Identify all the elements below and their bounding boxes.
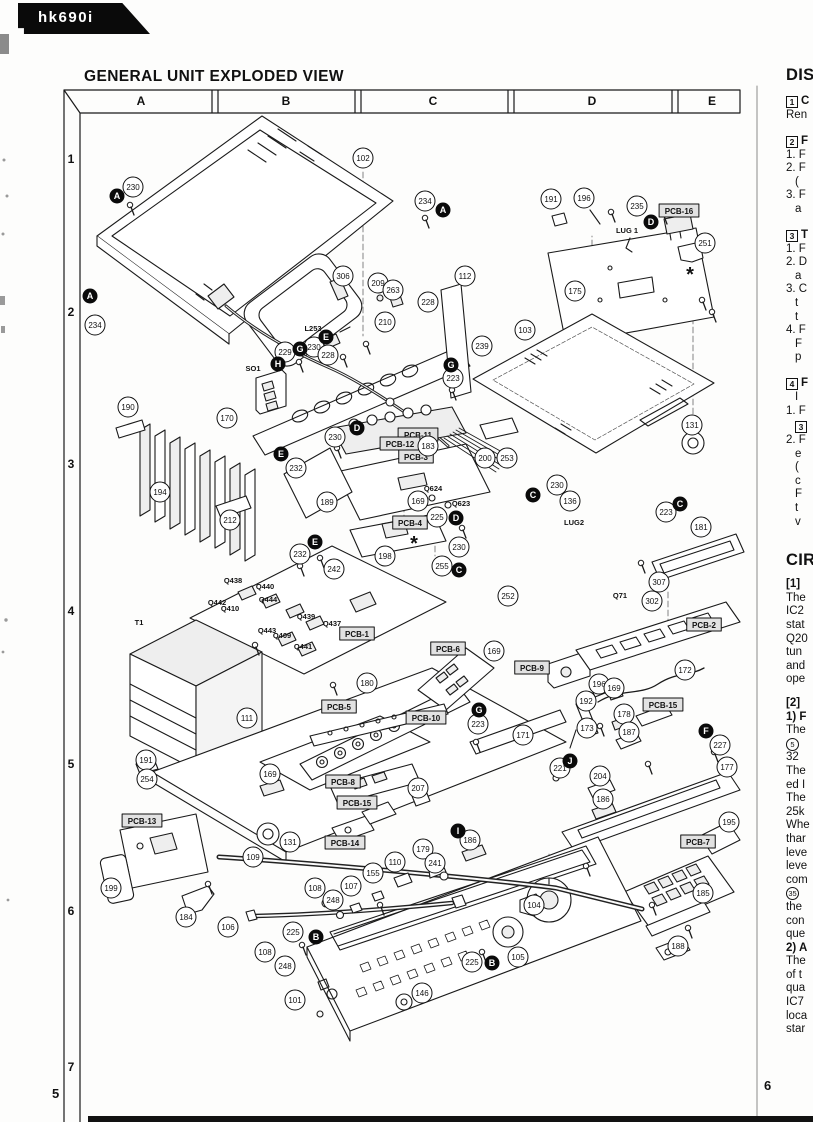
svg-text:PCB-9: PCB-9 — [520, 664, 545, 673]
svg-text:225: 225 — [465, 958, 479, 967]
svg-text:177: 177 — [720, 763, 734, 772]
svg-text:307: 307 — [652, 578, 666, 587]
svg-text:PCB-13: PCB-13 — [128, 817, 157, 826]
part-callout-248: 248 — [323, 890, 343, 910]
assembly-letter-marker-J: J — [563, 754, 578, 769]
right-column-line: The — [786, 724, 813, 738]
svg-text:101: 101 — [288, 996, 302, 1005]
svg-text:223: 223 — [446, 374, 460, 383]
boxed-step-number: 4 — [786, 378, 798, 390]
right-column-line — [786, 687, 813, 697]
part-callout-169: 169 — [408, 491, 428, 511]
svg-text:E: E — [278, 449, 284, 459]
right-column-line: Whe — [786, 819, 813, 833]
svg-text:104: 104 — [527, 901, 541, 910]
component-ref-label: Q440 — [256, 582, 274, 591]
part-callout-199: 199 — [101, 878, 121, 898]
grid-row-3: 3 — [63, 457, 79, 471]
svg-text:255: 255 — [435, 562, 449, 571]
part-callout-252: 252 — [498, 586, 518, 606]
svg-text:111: 111 — [241, 714, 254, 723]
svg-text:C: C — [456, 565, 463, 575]
right-column-line: tun — [786, 646, 813, 660]
svg-text:230: 230 — [126, 183, 140, 192]
svg-text:102: 102 — [356, 154, 370, 163]
svg-text:212: 212 — [223, 516, 237, 525]
manual-page: hk690i GENERAL UNIT EXPLODED VIEW — [0, 0, 813, 1122]
pcb-label: PCB-6 — [431, 642, 466, 655]
assembly-letter-marker-B: B — [309, 930, 324, 945]
right-column-line: 25k — [786, 806, 813, 820]
right-column-line: and — [786, 660, 813, 674]
left-foot — [257, 823, 279, 845]
assembly-letter-marker-E: E — [308, 535, 323, 550]
assembly-letter-marker-C: C — [452, 563, 467, 578]
svg-text:E: E — [312, 537, 318, 547]
boxed-step-number: 1 — [786, 96, 798, 108]
screw-icon — [645, 761, 652, 774]
part-callout-109: 109 — [243, 847, 263, 867]
right-column-line: 3. C — [786, 283, 813, 297]
grid-row-7: 7 — [63, 1060, 79, 1074]
part-callout-184: 184 — [176, 907, 196, 927]
right-column-line: que — [786, 928, 813, 942]
right-column-line — [786, 365, 813, 375]
svg-text:230: 230 — [328, 433, 342, 442]
component-ref-label: Q410 — [221, 604, 239, 613]
right-column-line: CIR — [786, 551, 813, 570]
svg-text:PCB-14: PCB-14 — [331, 839, 360, 848]
svg-text:227: 227 — [713, 741, 727, 750]
part-callout-155: 155 — [363, 863, 383, 883]
pcb-label: PCB-13 — [122, 814, 162, 827]
svg-text:PCB-5: PCB-5 — [327, 703, 352, 712]
right-column-line: 2. F — [786, 162, 813, 176]
svg-text:232: 232 — [293, 550, 307, 559]
right-column-line: IC2 — [786, 605, 813, 619]
component-ref-label: Q623 — [452, 499, 470, 508]
part-callout-187: 187 — [619, 722, 639, 742]
part-callout-191: 191 — [136, 750, 156, 770]
svg-text:PCB-16: PCB-16 — [665, 207, 694, 216]
grid-column-e: E — [702, 94, 722, 108]
assembly-letter-marker-E: E — [274, 447, 289, 462]
svg-text:107: 107 — [344, 882, 358, 891]
svg-text:169: 169 — [411, 497, 425, 506]
svg-text:189: 189 — [320, 498, 334, 507]
right-column-line — [786, 123, 813, 133]
screw-icon — [299, 942, 306, 955]
svg-text:191: 191 — [544, 195, 558, 204]
right-column-line: The — [786, 792, 813, 806]
svg-text:103: 103 — [518, 326, 532, 335]
svg-text:191: 191 — [139, 756, 153, 765]
part-callout-225: 225 — [283, 922, 303, 942]
svg-text:PCB-10: PCB-10 — [412, 714, 441, 723]
right-column-line: leve — [786, 860, 813, 874]
right-column-line: t — [786, 297, 813, 311]
assembly-letter-marker-H: H — [271, 357, 286, 372]
svg-text:190: 190 — [121, 403, 135, 412]
pcb-label: PCB-2 — [687, 618, 722, 631]
pcb-label: PCB-1 — [340, 627, 375, 640]
svg-text:F: F — [703, 726, 709, 736]
right-column-line: F — [786, 338, 813, 352]
right-column-line: c — [786, 475, 813, 489]
part-callout-230: 230 — [123, 177, 143, 197]
svg-text:186: 186 — [596, 795, 610, 804]
page-number-left: 5 — [52, 1086, 59, 1101]
right-column-line: Q20 — [786, 633, 813, 647]
svg-text:PCB-7: PCB-7 — [686, 838, 711, 847]
part-callout-189: 189 — [317, 492, 337, 512]
right-column-line: 3. F — [786, 189, 813, 203]
screw-icon — [340, 354, 347, 367]
component-ref-label: Q444 — [259, 595, 278, 604]
grid-column-a: A — [131, 94, 151, 108]
svg-text:169: 169 — [487, 647, 501, 656]
svg-text:PCB-12: PCB-12 — [386, 440, 415, 449]
right-column-line: 2F — [786, 133, 813, 149]
right-column-line: The — [786, 592, 813, 606]
part-callout-112: 112 — [455, 266, 475, 286]
svg-text:G: G — [296, 344, 303, 354]
svg-text:131: 131 — [283, 838, 297, 847]
component-ref-label: Q437 — [323, 619, 341, 628]
svg-text:223: 223 — [471, 720, 485, 729]
assembly-letter-marker-G: G — [472, 703, 487, 718]
svg-text:192: 192 — [579, 697, 593, 706]
circled-part-ref: 5 — [786, 738, 799, 751]
svg-text:185: 185 — [696, 889, 710, 898]
assembly-letter-marker-D: D — [644, 215, 659, 230]
svg-text:109: 109 — [246, 853, 260, 862]
svg-text:B: B — [313, 932, 320, 942]
pcb-label: PCB-14 — [325, 836, 365, 849]
right-column-line: F — [786, 488, 813, 502]
right-column-line: I — [786, 391, 813, 405]
svg-text:235: 235 — [630, 202, 644, 211]
right-column-line: v — [786, 516, 813, 530]
right-column-line: The — [786, 955, 813, 969]
grid-row-2: 2 — [63, 305, 79, 319]
svg-text:PCB-15: PCB-15 — [343, 799, 372, 808]
svg-text:210: 210 — [378, 318, 392, 327]
screw-icon — [330, 682, 337, 695]
scan-artifacts — [0, 34, 9, 901]
right-column-line: the — [786, 901, 813, 915]
component-ref-label: L253 — [304, 324, 321, 333]
right-column-line: thar — [786, 833, 813, 847]
grid-column-c: C — [423, 94, 443, 108]
assembly-letter-marker-D: D — [449, 511, 464, 526]
grid-column-d: D — [582, 94, 602, 108]
right-column-line: of t — [786, 969, 813, 983]
right-column-line — [786, 529, 813, 549]
screw-icon — [638, 560, 645, 573]
svg-text:PCB-2: PCB-2 — [692, 621, 717, 630]
assembly-letter-marker-D: D — [350, 421, 365, 436]
svg-text:179: 179 — [416, 845, 430, 854]
right-column-line: 2) A — [786, 942, 813, 956]
right-column-line: stat — [786, 619, 813, 633]
component-ref-label: Q441 — [294, 642, 312, 651]
part-callout-192: 192 — [576, 691, 596, 711]
svg-text:194: 194 — [153, 488, 167, 497]
part-callout-307: 307 — [649, 572, 669, 592]
right-column-line: 1) F — [786, 711, 813, 725]
pcb-label: PCB-10 — [406, 711, 446, 724]
svg-text:I: I — [457, 826, 460, 836]
svg-text:196: 196 — [577, 194, 591, 203]
svg-text:228: 228 — [321, 351, 335, 360]
svg-text:242: 242 — [327, 565, 341, 574]
svg-text:180: 180 — [360, 679, 374, 688]
pcb-label: PCB-12 — [380, 437, 420, 450]
boxed-step-number: 2 — [786, 136, 798, 148]
right-column-line: 32 — [786, 751, 813, 765]
svg-text:D: D — [354, 423, 361, 433]
svg-text:234: 234 — [418, 197, 432, 206]
right-column-line: 5 — [786, 738, 813, 752]
part-callout-108: 108 — [305, 878, 325, 898]
part-callout-146: 146 — [412, 983, 432, 1003]
part-callout-177: 177 — [717, 757, 737, 777]
svg-text:184: 184 — [179, 913, 193, 922]
grid-row-4: 4 — [63, 604, 79, 618]
right-column-line: qua — [786, 982, 813, 996]
part-callout-101: 101 — [285, 990, 305, 1010]
part-callout-186: 186 — [593, 789, 613, 809]
assembly-letter-marker-E: E — [319, 330, 334, 345]
right-column-line: 2. F — [786, 434, 813, 448]
svg-text:C: C — [530, 490, 537, 500]
assembly-letter-marker-C: C — [673, 497, 688, 512]
component-ref-label: Q439 — [297, 612, 315, 621]
pcb-label: PCB-4 — [393, 516, 428, 529]
right-column-line: ed I — [786, 779, 813, 793]
component-ref-label: LUG2 — [564, 518, 584, 527]
part-callout-251: 251 — [695, 233, 715, 253]
svg-text:230: 230 — [550, 481, 564, 490]
svg-text:175: 175 — [568, 287, 582, 296]
part-callout-111: 111 — [237, 708, 257, 728]
svg-text:223: 223 — [659, 508, 673, 517]
svg-text:169: 169 — [607, 684, 621, 693]
pcb-label: PCB-5 — [322, 700, 357, 713]
pcb-label: PCB-15 — [643, 698, 683, 711]
part-callout-254: 254 — [137, 769, 157, 789]
grid-row-1: 1 — [63, 152, 79, 166]
part-callout-242: 242 — [324, 559, 344, 579]
part-callout-191: 191 — [541, 189, 561, 209]
assembly-letter-marker-I: I — [451, 824, 466, 839]
svg-text:306: 306 — [336, 272, 350, 281]
svg-text:253: 253 — [500, 454, 514, 463]
part-callout-196: 196 — [574, 188, 594, 208]
right-column-line: loca — [786, 1010, 813, 1024]
screw-icon — [296, 359, 303, 372]
circled-part-ref: 35 — [786, 887, 799, 900]
part-callout-207: 207 — [408, 778, 428, 798]
pcb-label: PCB-9 — [515, 661, 550, 674]
part-callout-198: 198 — [375, 546, 395, 566]
svg-text:J: J — [567, 756, 572, 766]
part-callout-169: 169 — [484, 641, 504, 661]
svg-text:198: 198 — [378, 552, 392, 561]
right-column-line: The — [786, 765, 813, 779]
right-column-line: 1C — [786, 93, 813, 109]
part-callout-302: 302 — [642, 591, 662, 611]
svg-text:183: 183 — [421, 442, 435, 451]
right-column-line: 1. F — [786, 405, 813, 419]
svg-text:228: 228 — [421, 298, 435, 307]
right-column-line: con — [786, 915, 813, 929]
screw-icon — [597, 723, 604, 736]
part-callout-234: 234 — [415, 191, 435, 211]
svg-text:108: 108 — [258, 948, 272, 957]
svg-text:131: 131 — [685, 421, 699, 430]
svg-text:181: 181 — [694, 523, 708, 532]
part-callout-185: 185 — [693, 883, 713, 903]
svg-text:234: 234 — [88, 321, 102, 330]
part-callout-131: 131 — [280, 832, 300, 852]
right-column-line: t — [786, 502, 813, 516]
screw-icon — [459, 525, 466, 538]
part-callout-228: 228 — [318, 345, 338, 365]
component-ref-label: Q438 — [224, 576, 242, 585]
boxed-step-number: 3 — [786, 230, 798, 242]
svg-text:252: 252 — [501, 592, 515, 601]
svg-text:G: G — [447, 360, 454, 370]
svg-text:199: 199 — [104, 884, 118, 893]
svg-text:D: D — [648, 217, 655, 227]
right-text-column: DIS1CRen2F1. F2. F(3. Fa3T1. F2. Da3. Ct… — [786, 64, 813, 1037]
screw-icon — [363, 341, 370, 354]
part-callout-169: 169 — [260, 764, 280, 784]
pcb-label: PCB-15 — [337, 796, 377, 809]
part-callout-230: 230 — [547, 475, 567, 495]
right-column-line: a — [786, 203, 813, 217]
ac-socket — [256, 370, 286, 414]
component-ref-label: LUG 1 — [616, 226, 638, 235]
part-callout-136: 136 — [560, 491, 580, 511]
component-ref-label: Q71 — [613, 591, 627, 600]
part-callout-255: 255 — [432, 556, 452, 576]
assembly-letter-marker-A: A — [83, 289, 98, 304]
part-callout-188: 188 — [668, 936, 688, 956]
svg-text:112: 112 — [459, 272, 472, 281]
right-column-line: [2] — [786, 697, 813, 711]
svg-text:204: 204 — [593, 772, 607, 781]
pcb-label: PCB-8 — [326, 775, 361, 788]
svg-text:170: 170 — [220, 414, 234, 423]
pcb-label: PCB-7 — [681, 835, 716, 848]
right-column-line: e — [786, 448, 813, 462]
right-column-line: IC7 — [786, 996, 813, 1010]
right-column-line: star — [786, 1023, 813, 1037]
svg-text:239: 239 — [475, 342, 489, 351]
part-callout-173: 173 — [577, 718, 597, 738]
part-callout-169: 169 — [604, 678, 624, 698]
svg-text:B: B — [489, 958, 496, 968]
svg-text:A: A — [440, 205, 447, 215]
part-callout-225: 225 — [427, 507, 447, 527]
part-callout-178: 178 — [614, 704, 634, 724]
component-ref-label: Q409 — [273, 631, 291, 640]
component-ref-label: T1 — [135, 618, 144, 627]
svg-text:106: 106 — [221, 923, 235, 932]
assembly-letter-marker-G: G — [293, 342, 308, 357]
assembly-letter-marker-C: C — [526, 488, 541, 503]
part-callout-200: 200 — [475, 448, 495, 468]
right-column-line — [786, 217, 813, 227]
svg-text:PCB-4: PCB-4 — [398, 519, 423, 528]
asterisk-mark: * — [410, 533, 418, 555]
part-callout-181: 181 — [691, 517, 711, 537]
svg-text:108: 108 — [308, 884, 322, 893]
svg-text:241: 241 — [428, 859, 442, 868]
part-callout-102: 102 — [353, 148, 373, 168]
part-callout-210: 210 — [375, 312, 395, 332]
right-column-line: 4F — [786, 375, 813, 391]
svg-text:254: 254 — [140, 775, 154, 784]
svg-text:200: 200 — [478, 454, 492, 463]
assembly-letter-marker-A: A — [436, 203, 451, 218]
svg-text:302: 302 — [645, 597, 659, 606]
right-column-line: 1. F — [786, 243, 813, 257]
part-callout-239: 239 — [472, 336, 492, 356]
right-column-line: DIS — [786, 66, 813, 85]
svg-text:188: 188 — [671, 942, 685, 951]
part-callout-105: 105 — [508, 947, 528, 967]
part-callout-230: 230 — [325, 427, 345, 447]
part-callout-108: 108 — [255, 942, 275, 962]
right-column-line: com — [786, 874, 813, 888]
svg-text:PCB-8: PCB-8 — [331, 778, 356, 787]
pcb-label: PCB-16 — [659, 204, 699, 217]
screw-icon — [422, 215, 429, 228]
svg-text:187: 187 — [622, 728, 636, 737]
svg-text:C: C — [677, 499, 684, 509]
boxed-step-number: 3 — [795, 421, 807, 433]
part-callout-106: 106 — [218, 917, 238, 937]
right-column-line: 1. F — [786, 149, 813, 163]
right-column-line: t — [786, 311, 813, 325]
part-callout-232: 232 — [286, 458, 306, 478]
part-callout-225: 225 — [462, 952, 482, 972]
part-callout-212: 212 — [220, 510, 240, 530]
part-callout-110: 110 — [385, 852, 405, 872]
part-callout-183: 183 — [418, 436, 438, 456]
part-callout-180: 180 — [357, 673, 377, 693]
right-column-line: ( — [786, 176, 813, 190]
svg-text:225: 225 — [430, 513, 444, 522]
exploded-view-diagram: PCB-16PCB-11PCB-12PCB-3PCB-4PCB-1PCB-2PC… — [0, 0, 813, 1122]
svg-text:230: 230 — [452, 543, 466, 552]
right-column-line: 35 — [786, 887, 813, 901]
svg-text:D: D — [453, 513, 460, 523]
svg-text:225: 225 — [286, 928, 300, 937]
part-callout-195: 195 — [719, 812, 739, 832]
part-callout-171: 171 — [513, 725, 533, 745]
asterisk-mark: * — [686, 264, 694, 286]
svg-text:263: 263 — [386, 286, 400, 295]
svg-text:172: 172 — [678, 666, 692, 675]
svg-text:A: A — [114, 191, 121, 201]
part-callout-230: 230 — [449, 537, 469, 557]
svg-text:155: 155 — [366, 869, 380, 878]
